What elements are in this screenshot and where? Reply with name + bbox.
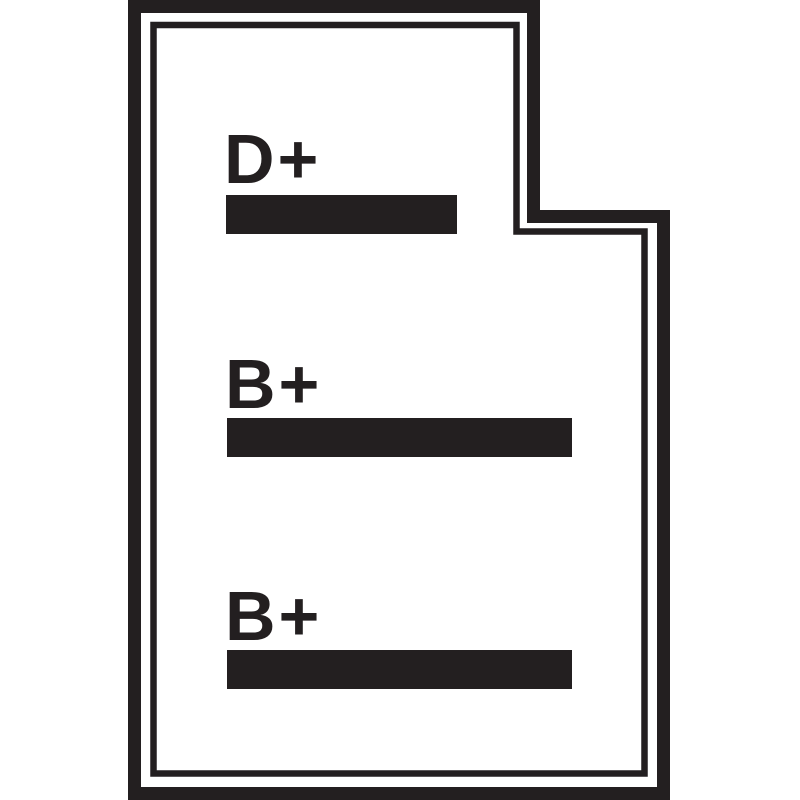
terminal-b-plus-bottom-bar (227, 650, 572, 689)
terminal-d-plus-bar (226, 195, 457, 234)
terminal-b-plus-bottom-label: B+ (225, 581, 322, 651)
terminal-b-plus-middle-bar (227, 418, 572, 457)
terminal-d-plus-label: D+ (224, 124, 321, 194)
connector-pinout-diagram: D+ B+ B+ (0, 0, 800, 800)
terminal-b-plus-middle-label: B+ (225, 349, 322, 419)
